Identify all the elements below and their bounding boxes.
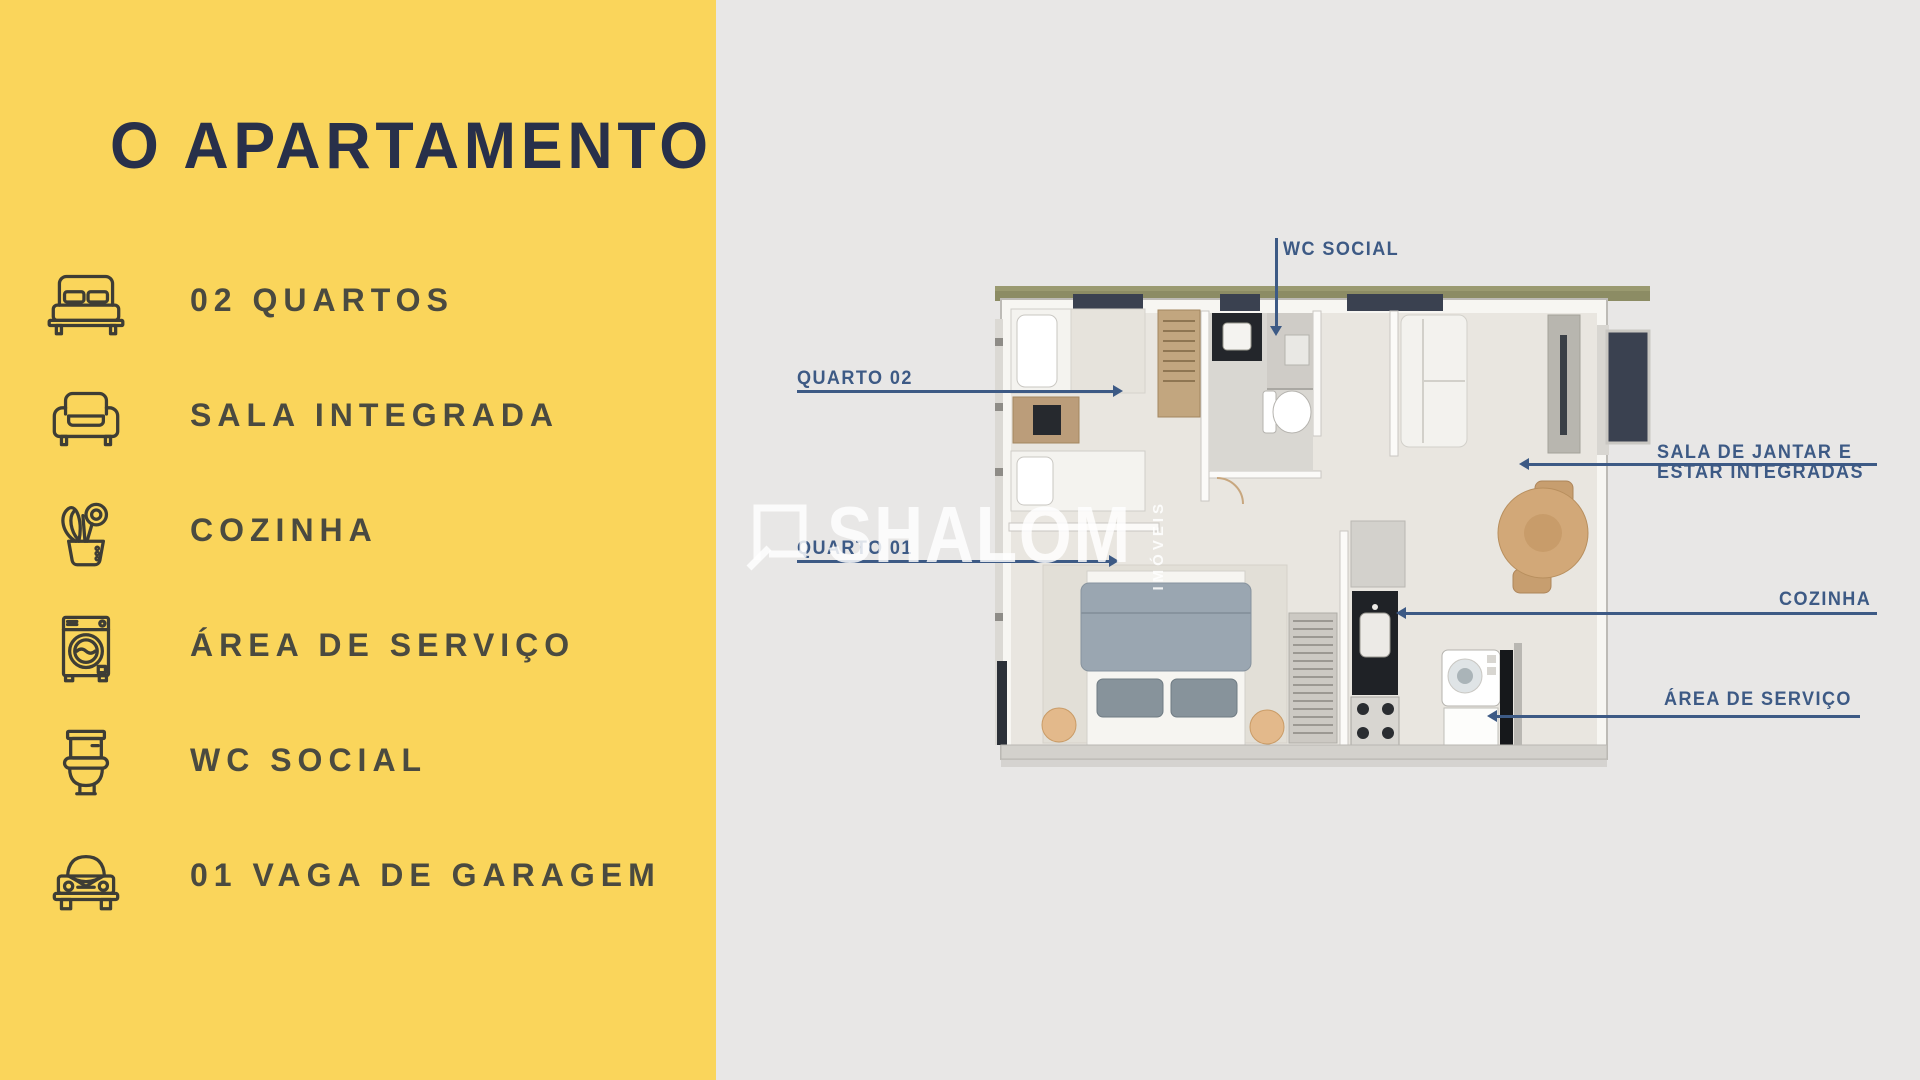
feature-row-bedrooms: 02 QUARTOS xyxy=(40,243,700,358)
feature-label: ÁREA DE SERVIÇO xyxy=(190,627,575,664)
page-title: O APARTAMENTO xyxy=(110,112,713,178)
arrowhead-sala xyxy=(1519,458,1529,470)
feature-row-living: SALA INTEGRADA xyxy=(40,358,700,473)
leader-line-quarto-02 xyxy=(797,390,1113,393)
bed-icon xyxy=(40,255,132,347)
feature-row-kitchen: COZINHA xyxy=(40,473,700,588)
balcony-window xyxy=(1607,331,1649,443)
label-quarto-01: QUARTO 01 xyxy=(797,539,913,559)
feature-label: 02 QUARTOS xyxy=(190,282,454,319)
leader-line-area-servico xyxy=(1497,715,1860,718)
feature-sidebar: O APARTAMENTO 02 QUARTOS xyxy=(0,0,716,1080)
leader-line-cozinha xyxy=(1406,612,1877,615)
arrowhead-wc xyxy=(1270,326,1282,336)
label-sala-line1: SALA DE JANTAR E xyxy=(1657,443,1864,463)
servico-area xyxy=(1442,643,1522,745)
arrowhead-quarto-02 xyxy=(1113,385,1123,397)
leader-line-sala xyxy=(1529,463,1877,466)
leader-line-wc xyxy=(1275,238,1278,326)
leader-line-quarto-01 xyxy=(797,560,1109,563)
window xyxy=(997,661,1007,745)
feature-label: SALA INTEGRADA xyxy=(190,397,559,434)
label-sala-line2: ESTAR INTEGRADAS xyxy=(1657,463,1864,483)
page: O APARTAMENTO 02 QUARTOS xyxy=(0,0,1920,1080)
window xyxy=(1347,294,1443,311)
cozinha-area xyxy=(1351,521,1405,745)
stove xyxy=(1351,697,1399,745)
feature-row-wc: WC SOCIAL xyxy=(40,703,700,818)
feature-label: COZINHA xyxy=(190,512,378,549)
feature-row-garage: 01 VAGA DE GARAGEM xyxy=(40,818,700,933)
window xyxy=(1073,294,1143,311)
label-area-servico: ÁREA DE SERVIÇO xyxy=(1664,690,1852,710)
car-icon xyxy=(40,830,132,922)
sofa-icon xyxy=(40,370,132,462)
washer-icon xyxy=(40,600,132,692)
wardrobe xyxy=(1158,310,1200,417)
window xyxy=(1220,294,1260,311)
feature-label: WC SOCIAL xyxy=(190,742,427,779)
feature-label: 01 VAGA DE GARAGEM xyxy=(190,857,661,894)
feature-row-laundry: ÁREA DE SERVIÇO xyxy=(40,588,700,703)
label-cozinha: COZINHA xyxy=(1779,590,1871,610)
label-wc-social: WC SOCIAL xyxy=(1283,240,1399,260)
arrowhead-cozinha xyxy=(1396,607,1406,619)
watermark-sub: IMÓVEIS xyxy=(1150,500,1167,591)
feature-list: 02 QUARTOS SALA INTEGRADA xyxy=(40,243,700,933)
arrowhead-area-servico xyxy=(1487,710,1497,722)
label-quarto-02: QUARTO 02 xyxy=(797,369,913,389)
utensils-icon xyxy=(40,485,132,577)
arrowhead-quarto-01 xyxy=(1109,555,1119,567)
toilet-icon xyxy=(40,715,132,807)
